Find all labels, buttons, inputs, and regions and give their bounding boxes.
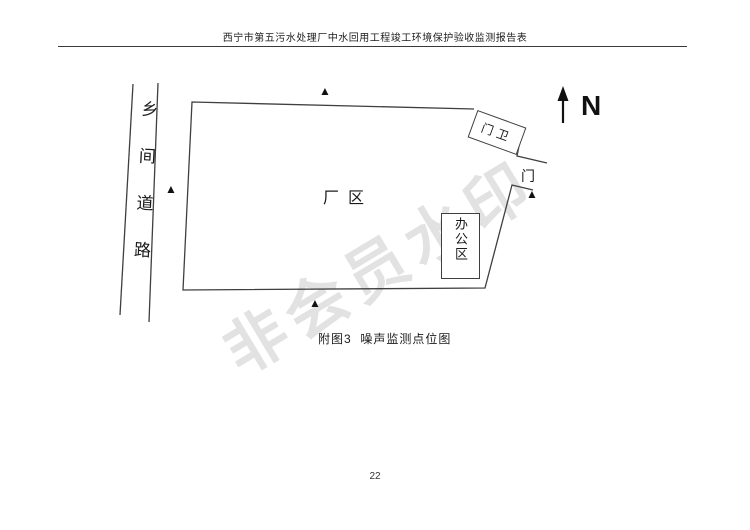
north-arrow-head [558, 86, 569, 101]
site-plan-drawing [0, 0, 750, 530]
gatehouse-label: 门卫 [479, 119, 515, 146]
figure-caption: 附图3 噪声监测点位图 [318, 330, 451, 347]
factory-area-label: 厂区 [323, 184, 373, 208]
report-header-title: 西宁市第五污水处理厂中水回用工程竣工环境保护验收监测报告表 [0, 29, 750, 44]
page-number: 22 [0, 471, 750, 482]
noise-monitoring-point-marker-west: ▲ [165, 183, 177, 195]
noise-monitoring-point-marker-north: ▲ [319, 85, 331, 97]
noise-monitoring-point-marker-south: ▲ [309, 297, 321, 309]
north-label: N [581, 90, 601, 122]
office-area-box: 办公区 [441, 213, 480, 279]
document-page: 非会员水印 西宁市第五污水处理厂中水回用工程竣工环境保护验收监测报告表 乡间道路… [0, 0, 750, 530]
gate-label: 门 [521, 166, 535, 186]
north-arrow-icon [558, 86, 569, 123]
office-area-label: 办公区 [451, 217, 470, 278]
header-divider-line [58, 46, 687, 47]
noise-monitoring-point-marker-east: ▲ [526, 188, 538, 200]
